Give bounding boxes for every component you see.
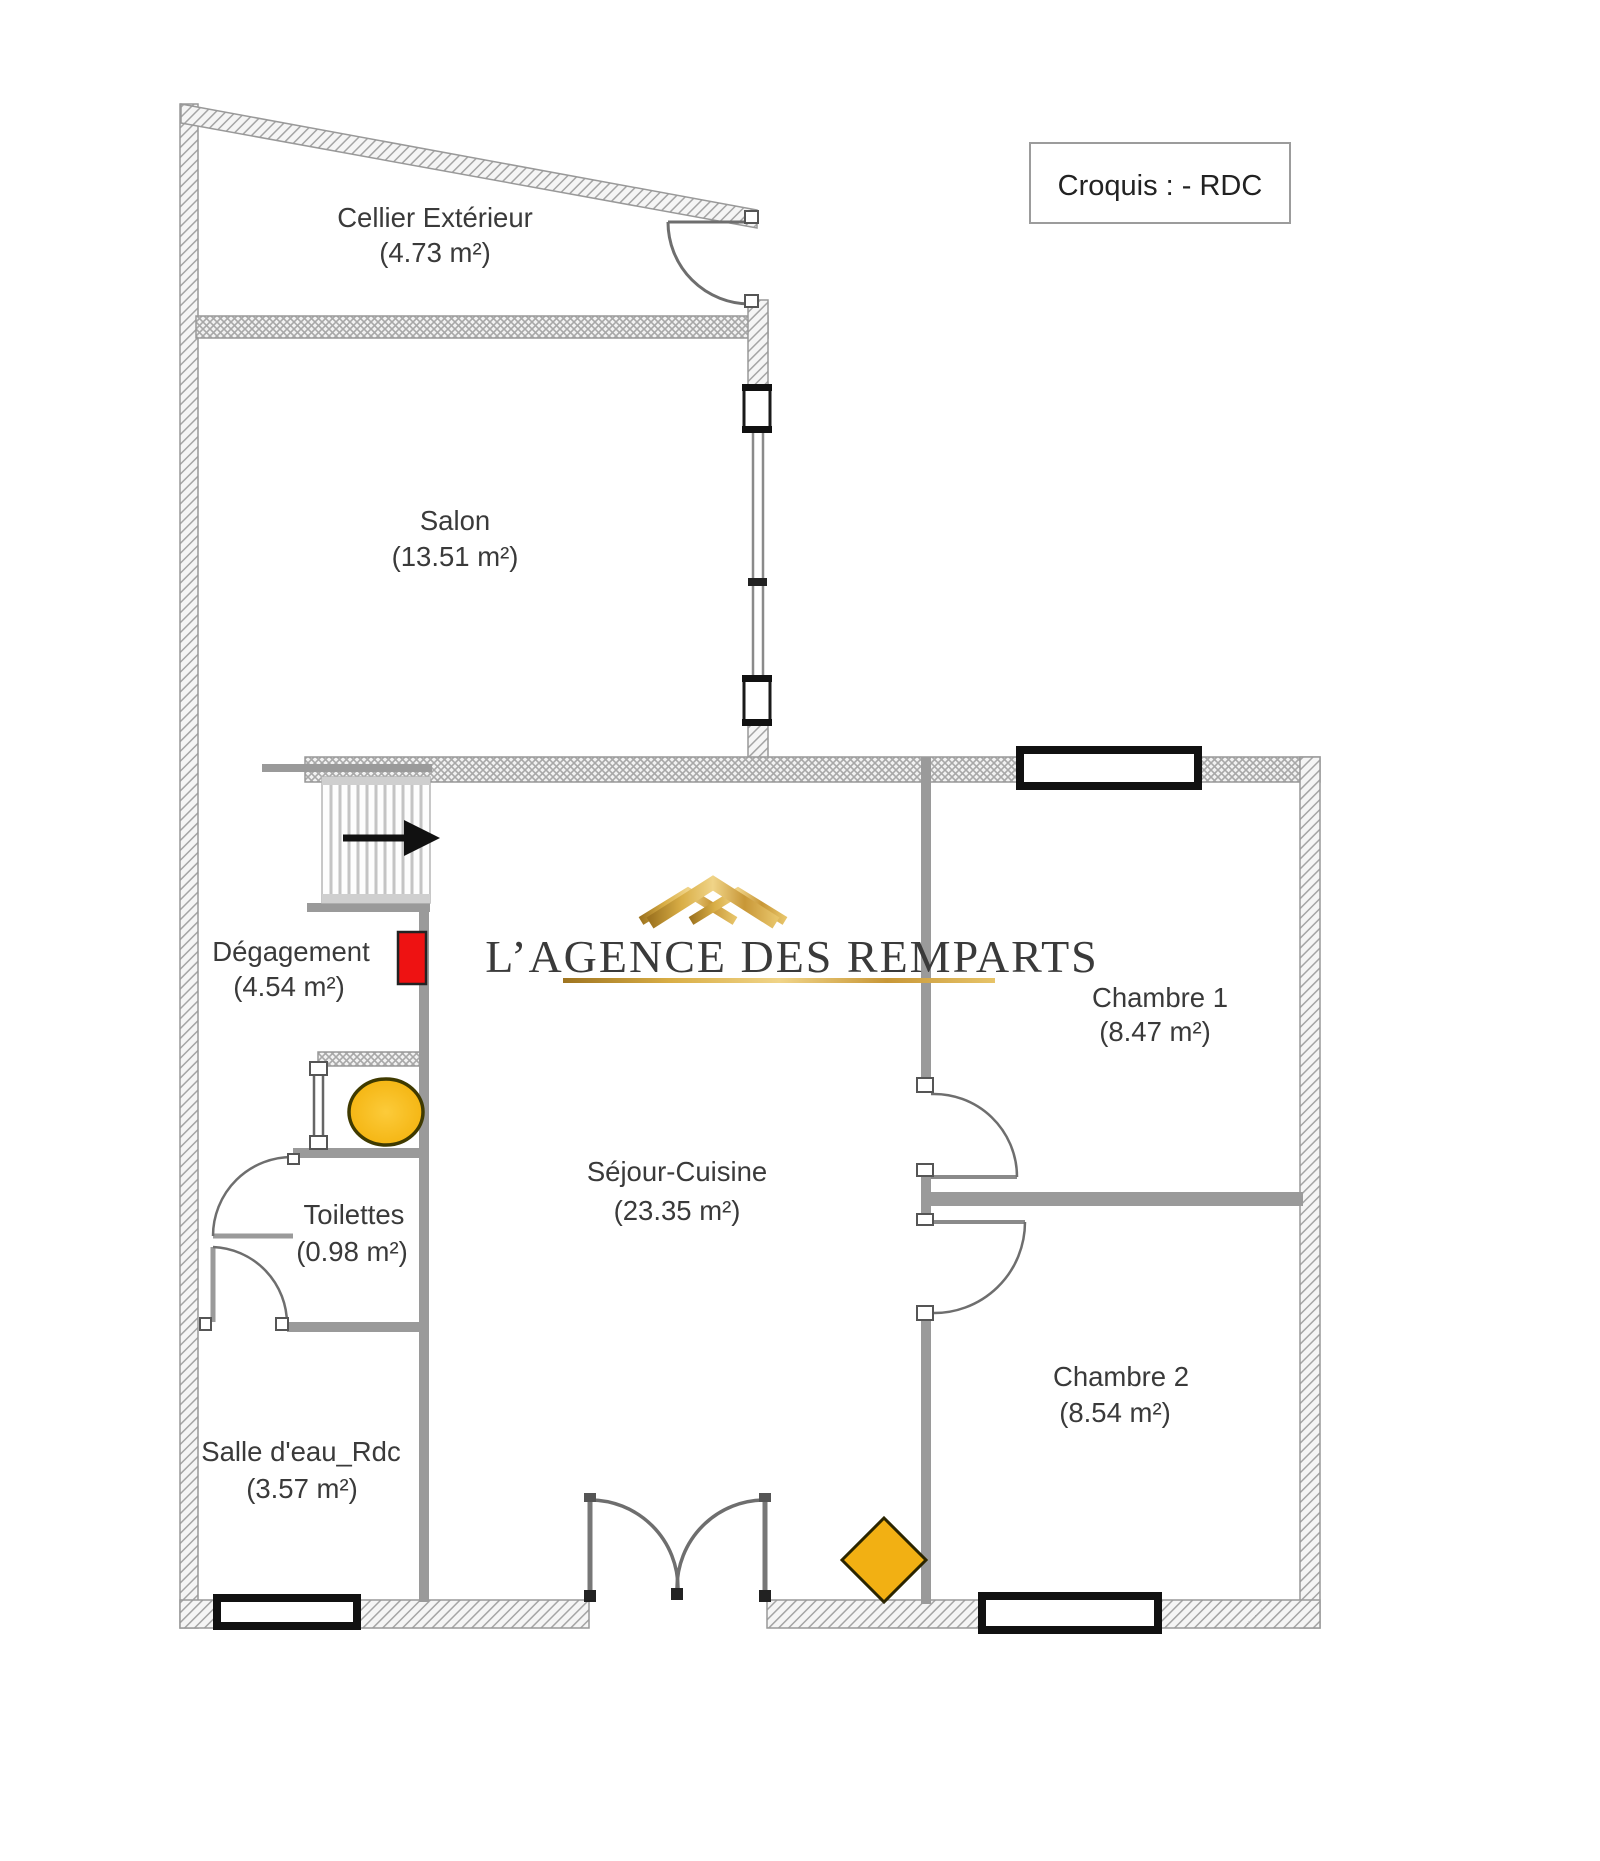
label-sejour-cuisine: Séjour-Cuisine (23.35 m²) bbox=[587, 1156, 767, 1226]
wall-sejour-chambre1-upper bbox=[921, 757, 931, 1080]
wall-salon-right-upper bbox=[748, 300, 768, 388]
svg-text:Toilettes: Toilettes bbox=[304, 1199, 405, 1230]
svg-text:Cellier Extérieur: Cellier Extérieur bbox=[337, 202, 533, 233]
door-chambre-2 bbox=[917, 1214, 1025, 1320]
svg-text:(0.98 m²): (0.98 m²) bbox=[296, 1236, 408, 1267]
svg-text:(13.51 m²): (13.51 m²) bbox=[392, 541, 519, 572]
label-chambre-1: Chambre 1 (8.47 m²) bbox=[1092, 982, 1228, 1047]
watermark-underline bbox=[563, 978, 995, 983]
title-box: Croquis : - RDC bbox=[1030, 143, 1290, 223]
svg-text:(4.54 m²): (4.54 m²) bbox=[233, 971, 345, 1002]
svg-text:Séjour-Cuisine: Séjour-Cuisine bbox=[587, 1156, 767, 1187]
svg-text:(4.73 m²): (4.73 m²) bbox=[379, 237, 491, 268]
svg-text:(3.57 m²): (3.57 m²) bbox=[246, 1473, 358, 1504]
door-toilettes bbox=[213, 1154, 299, 1236]
fixtures bbox=[349, 932, 926, 1602]
label-chambre-2: Chambre 2 (8.54 m²) bbox=[1053, 1361, 1189, 1428]
gold-roof-icon bbox=[641, 883, 785, 923]
door-toilettes-sliding bbox=[310, 1062, 327, 1149]
window-chambre1-top bbox=[1020, 750, 1198, 786]
wall-cellier-salon-divider bbox=[196, 316, 768, 338]
wall-salon-right-lower bbox=[748, 724, 768, 760]
watermark-logo: L’AGENCE DES REMPARTS bbox=[485, 883, 1099, 983]
floor-plan-drawing: L’AGENCE DES REMPARTS Croquis : - RDC Ce… bbox=[0, 0, 1600, 1861]
stairs bbox=[322, 777, 440, 903]
yellow-diamond-marker bbox=[842, 1518, 926, 1602]
svg-text:(8.54 m²): (8.54 m²) bbox=[1059, 1397, 1171, 1428]
svg-text:(23.35 m²): (23.35 m²) bbox=[614, 1195, 741, 1226]
wall-stairs-top-cap bbox=[262, 764, 432, 772]
wall-toilettes-top bbox=[318, 1052, 426, 1066]
window-chambre2-bottom bbox=[982, 1596, 1158, 1630]
svg-text:Salon: Salon bbox=[420, 505, 490, 536]
wall-stairs-bottom-cap bbox=[307, 903, 430, 912]
svg-text:Chambre 2: Chambre 2 bbox=[1053, 1361, 1189, 1392]
door-chambre-1 bbox=[917, 1078, 1017, 1177]
label-salle-deau: Salle d'eau_Rdc (3.57 m²) bbox=[201, 1436, 401, 1504]
window-salon-lower bbox=[742, 675, 772, 726]
red-door-marker bbox=[398, 932, 426, 984]
watermark-text: L’AGENCE DES REMPARTS bbox=[485, 931, 1099, 982]
wall-salle-deau-top bbox=[287, 1322, 427, 1332]
svg-text:Dégagement: Dégagement bbox=[212, 936, 370, 967]
door-entrance-double bbox=[584, 1493, 771, 1602]
door-salle-deau bbox=[200, 1247, 288, 1330]
label-cellier: Cellier Extérieur (4.73 m²) bbox=[337, 202, 533, 268]
page-title: Croquis : - RDC bbox=[1058, 170, 1263, 202]
floor-plan-page: L’AGENCE DES REMPARTS Croquis : - RDC Ce… bbox=[0, 0, 1600, 1861]
svg-text:Chambre 1: Chambre 1 bbox=[1092, 982, 1228, 1013]
label-salon: Salon (13.51 m²) bbox=[392, 505, 519, 572]
wall-chambre1-chambre2-divider bbox=[931, 1192, 1303, 1206]
toilet-fixture bbox=[349, 1079, 423, 1145]
sliding-door-track-salon bbox=[748, 433, 767, 679]
wall-degagement-sejour bbox=[419, 903, 429, 1602]
svg-text:(8.47 m²): (8.47 m²) bbox=[1099, 1016, 1211, 1047]
window-salle-deau-bottom bbox=[217, 1598, 357, 1626]
label-degagement: Dégagement (4.54 m²) bbox=[212, 936, 370, 1002]
svg-text:Salle d'eau_Rdc: Salle d'eau_Rdc bbox=[201, 1436, 401, 1467]
window-salon-upper bbox=[742, 384, 772, 433]
label-toilettes: Toilettes (0.98 m²) bbox=[296, 1199, 408, 1267]
